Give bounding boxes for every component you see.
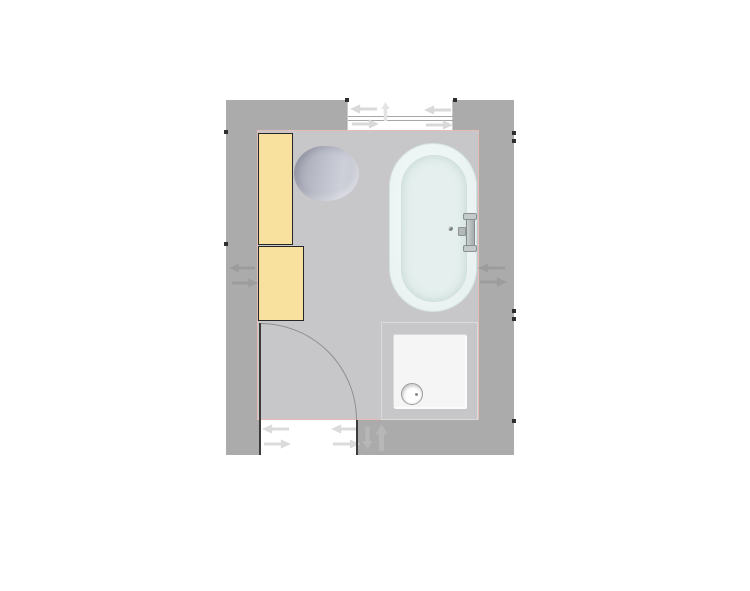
wall-tick — [512, 317, 516, 321]
wall-tick — [512, 309, 516, 313]
arrow-left-icon[interactable] — [262, 424, 289, 434]
wall-tick — [512, 419, 516, 423]
door-leaf — [259, 323, 261, 455]
wall-tick — [224, 242, 228, 246]
wall-tick — [512, 131, 516, 135]
floor-plan — [226, 100, 514, 455]
shower-drain — [401, 383, 423, 405]
faucet-body — [466, 219, 475, 246]
bathtub-drain-dot — [448, 226, 453, 231]
wall-tick — [453, 98, 457, 102]
toilet[interactable] — [294, 146, 359, 201]
arrow-left-icon[interactable] — [478, 263, 505, 273]
arrow-left-icon[interactable] — [229, 263, 255, 273]
faucet-knob — [463, 245, 477, 252]
faucet-knob — [463, 213, 477, 220]
arrow-down-icon[interactable] — [362, 425, 373, 451]
bathtub-faucet — [447, 212, 479, 254]
arrow-right-icon[interactable] — [264, 439, 291, 449]
arrow-up-icon[interactable] — [375, 424, 388, 451]
arrow-right-icon[interactable] — [480, 277, 507, 287]
cabinet-tall[interactable] — [258, 133, 293, 245]
wall-tick — [512, 139, 516, 143]
wall-tick — [224, 130, 228, 134]
arrow-up-icon[interactable] — [377, 102, 394, 121]
arrow-right-icon[interactable] — [426, 120, 453, 130]
faucet-spout — [458, 227, 466, 236]
arrow-left-icon[interactable] — [424, 105, 451, 115]
bathtub[interactable] — [389, 143, 477, 312]
wall-tick — [345, 98, 349, 102]
arrow-right-icon[interactable] — [352, 119, 379, 129]
window[interactable] — [347, 100, 453, 130]
arrow-left-icon[interactable] — [350, 104, 377, 114]
door-opening[interactable] — [260, 420, 357, 455]
shower-tray[interactable] — [381, 322, 478, 420]
cabinet-low[interactable] — [258, 246, 304, 321]
arrow-left-icon[interactable] — [331, 424, 358, 434]
door-jamb — [356, 420, 358, 455]
arrow-right-icon[interactable] — [232, 278, 258, 288]
